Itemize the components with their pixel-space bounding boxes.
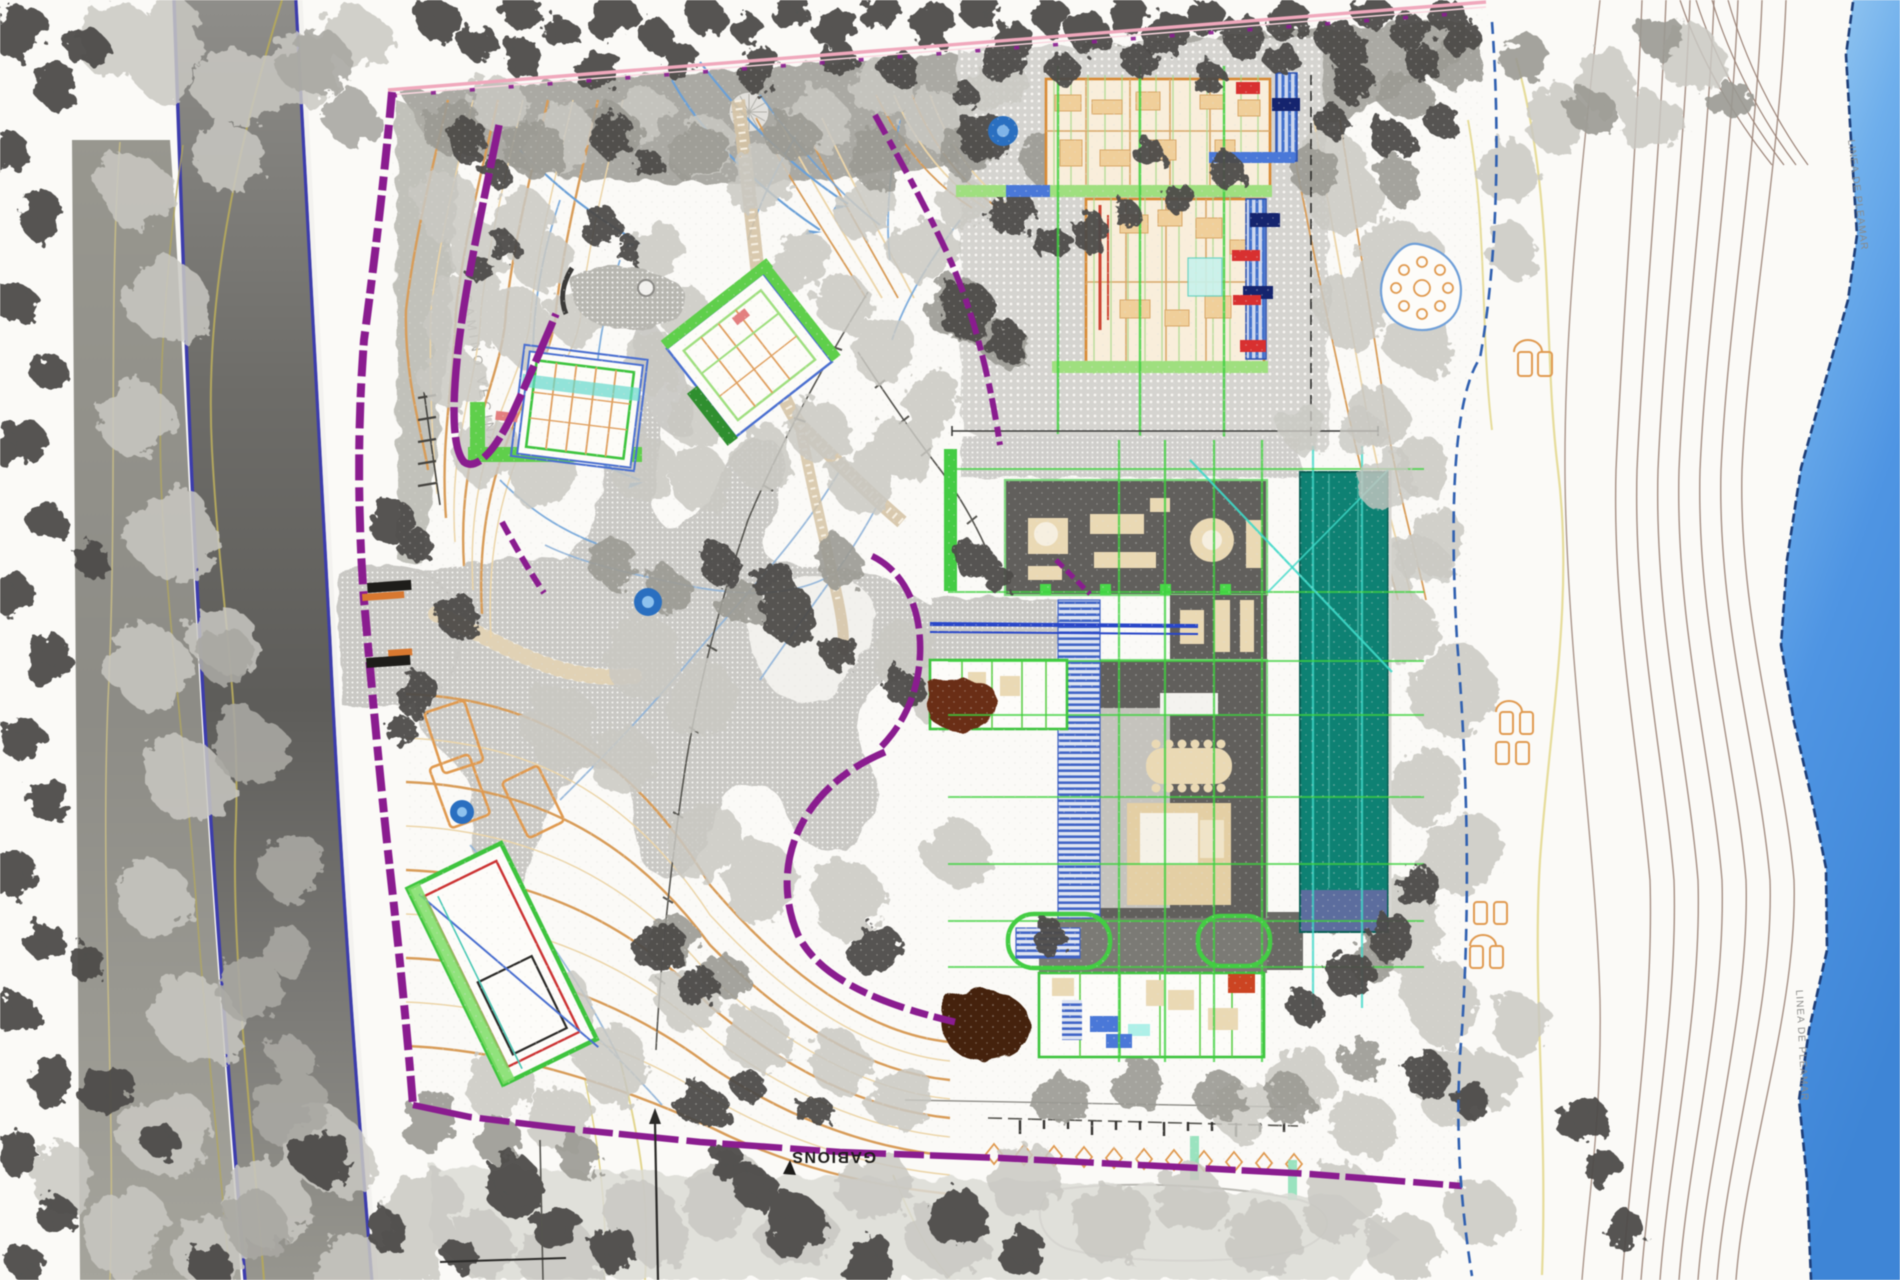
svg-text:GABIONS: GABIONS bbox=[791, 1148, 876, 1165]
